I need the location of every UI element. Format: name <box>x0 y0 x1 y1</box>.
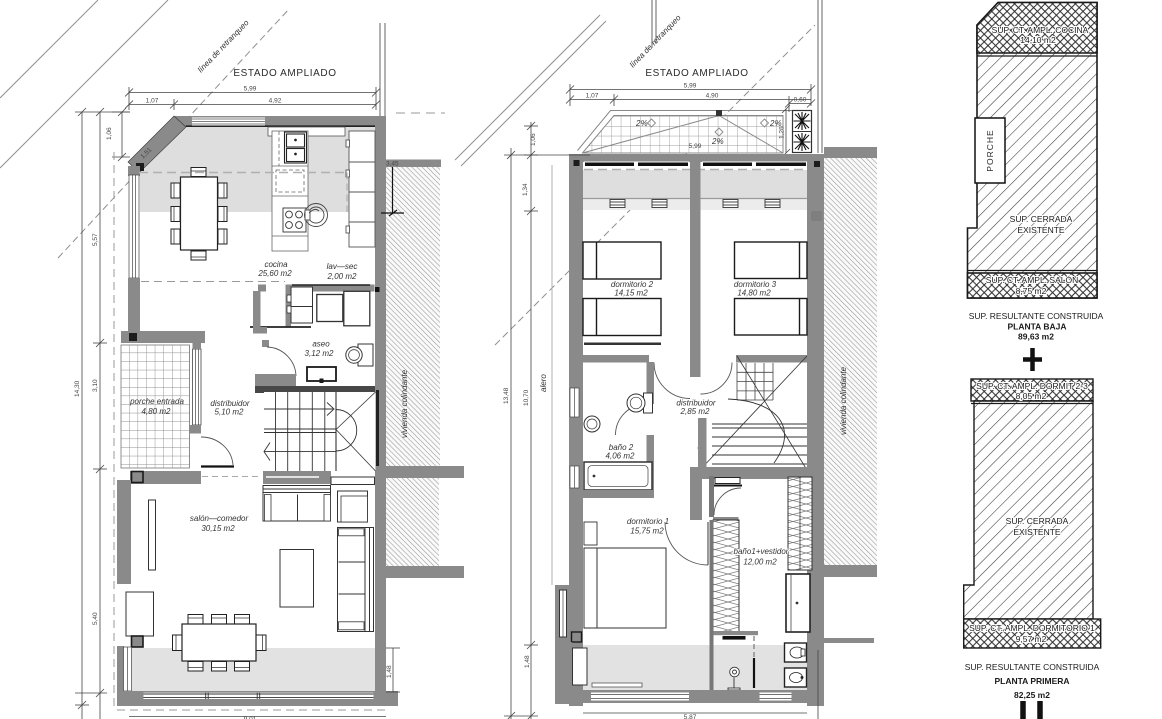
svg-text:aseo: aseo <box>312 340 330 349</box>
svg-text:1,06: 1,06 <box>530 133 537 146</box>
svg-text:1,48: 1,48 <box>386 665 393 678</box>
svg-text:SUP. RESULTANTE CONSTRUIDA: SUP. RESULTANTE CONSTRUIDA <box>965 662 1100 672</box>
svg-text:8,05 m2: 8,05 m2 <box>1016 391 1047 401</box>
svg-text:14,15 m2: 14,15 m2 <box>614 289 648 298</box>
svg-text:2,00 m2: 2,00 m2 <box>327 272 357 281</box>
svg-text:15,75 m2: 15,75 m2 <box>630 527 664 536</box>
svg-text:lav—sec: lav—sec <box>327 262 358 271</box>
svg-text:baño1+vestidor: baño1+vestidor <box>734 547 789 556</box>
svg-text:12,00 m2: 12,00 m2 <box>743 558 777 567</box>
svg-text:1,48: 1,48 <box>524 655 531 668</box>
svg-text:1,34: 1,34 <box>522 183 529 196</box>
svg-text:4,90: 4,90 <box>706 93 719 100</box>
svg-text:vivienda colindante: vivienda colindante <box>400 369 409 438</box>
svg-text:alero: alero <box>539 374 548 392</box>
svg-text:4,06 m2: 4,06 m2 <box>606 452 635 461</box>
svg-text:8,75 m2: 8,75 m2 <box>1016 286 1047 296</box>
svg-text:3,10: 3,10 <box>92 379 99 392</box>
svg-text:1,06: 1,06 <box>106 127 113 140</box>
svg-text:5,10 m2: 5,10 m2 <box>215 408 244 417</box>
svg-text:EXISTENTE: EXISTENTE <box>1017 225 1065 235</box>
svg-text:5,99: 5,99 <box>689 143 702 150</box>
svg-text:PORCHE: PORCHE <box>985 129 995 171</box>
svg-text:82,25 m2: 82,25 m2 <box>1014 690 1050 700</box>
svg-text:25,60 m2: 25,60 m2 <box>257 269 292 278</box>
svg-text:5,99: 5,99 <box>244 86 257 93</box>
svg-text:3,12 m2: 3,12 m2 <box>305 349 334 358</box>
svg-text:SUP. CT. AMPL. COCINA: SUP. CT. AMPL. COCINA <box>992 25 1089 35</box>
svg-text:5,87: 5,87 <box>684 714 697 719</box>
svg-text:SUP. RESULTANTE CONSTRUIDA: SUP. RESULTANTE CONSTRUIDA <box>969 311 1104 321</box>
svg-text:2%: 2% <box>711 137 724 146</box>
svg-text:14,30: 14,30 <box>74 380 81 397</box>
svg-text:14,80 m2: 14,80 m2 <box>737 289 771 298</box>
svg-text:30,15 m2: 30,15 m2 <box>201 524 235 533</box>
svg-text:13,48: 13,48 <box>503 387 510 404</box>
svg-text:2%: 2% <box>635 119 648 128</box>
svg-text:SUP. CERRADA: SUP. CERRADA <box>1006 516 1069 526</box>
svg-text:4,92: 4,92 <box>269 98 282 105</box>
svg-text:EXISTENTE: EXISTENTE <box>1013 527 1061 537</box>
svg-text:PLANTA PRIMERA: PLANTA PRIMERA <box>994 676 1069 686</box>
svg-text:0,60: 0,60 <box>794 97 807 104</box>
svg-text:10,70: 10,70 <box>523 389 530 406</box>
svg-text:5,40: 5,40 <box>92 612 99 625</box>
svg-text:9,57 m2: 9,57 m2 <box>1016 634 1047 644</box>
svg-text:SUP. CT. AMPL. SALÓN: SUP. CT. AMPL. SALÓN <box>986 275 1078 285</box>
svg-text:SUP. CT. AMPL. DORMITORIO 1: SUP. CT. AMPL. DORMITORIO 1 <box>969 623 1095 633</box>
svg-text:ESTADO AMPLIADO: ESTADO AMPLIADO <box>645 68 748 79</box>
svg-text:14,10 m2: 14,10 m2 <box>1020 35 1056 45</box>
svg-text:89,63 m2: 89,63 m2 <box>1018 332 1054 342</box>
svg-text:vivienda colindante: vivienda colindante <box>839 366 848 435</box>
svg-text:SUP. CERRADA: SUP. CERRADA <box>1010 214 1073 224</box>
svg-text:4,80 m2: 4,80 m2 <box>142 407 171 416</box>
svg-text:porche entrada: porche entrada <box>129 397 184 406</box>
svg-text:5,99: 5,99 <box>684 83 697 90</box>
svg-text:cocina: cocina <box>264 260 288 269</box>
svg-text:1,07: 1,07 <box>146 98 159 105</box>
svg-text:5,57: 5,57 <box>92 233 99 246</box>
svg-text:SUP. CT. AMPL. DORMIT 2-3: SUP. CT. AMPL. DORMIT 2-3 <box>976 381 1088 391</box>
svg-text:1,26: 1,26 <box>779 126 786 139</box>
svg-text:salón—comedor: salón—comedor <box>190 514 249 523</box>
svg-text:dormitorio 1: dormitorio 1 <box>627 517 669 526</box>
svg-text:ESTADO AMPLIADO: ESTADO AMPLIADO <box>233 68 336 79</box>
svg-text:2,85 m2: 2,85 m2 <box>680 407 710 416</box>
svg-text:1,07: 1,07 <box>586 93 599 100</box>
svg-text:3,45: 3,45 <box>386 161 399 168</box>
svg-text:PLANTA BAJA: PLANTA BAJA <box>1007 322 1066 332</box>
